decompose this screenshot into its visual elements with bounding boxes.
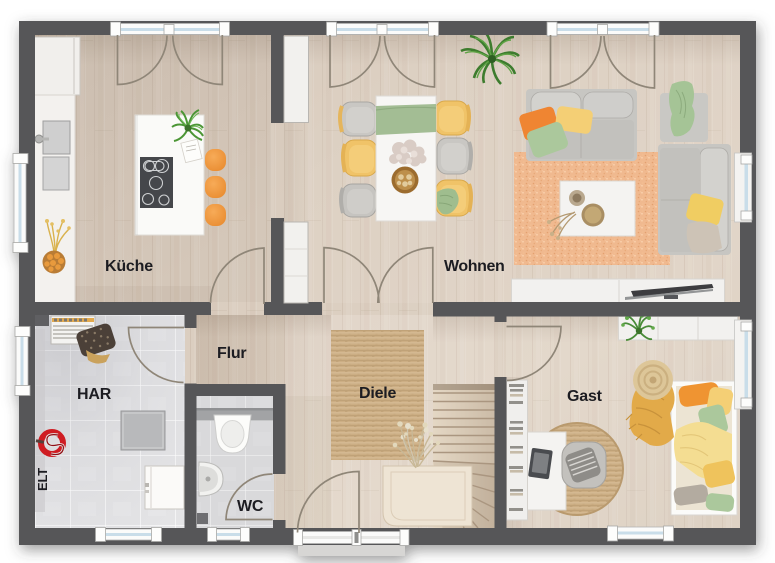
svg-text:Küche: Küche <box>105 258 153 275</box>
svg-text:ELT: ELT <box>35 468 50 491</box>
svg-text:Diele: Diele <box>359 385 397 402</box>
svg-text:HAR: HAR <box>77 386 112 403</box>
svg-text:Flur: Flur <box>217 345 246 362</box>
svg-text:Gast: Gast <box>567 388 603 405</box>
svg-text:WC: WC <box>237 498 264 515</box>
svg-text:Wohnen: Wohnen <box>444 258 504 275</box>
